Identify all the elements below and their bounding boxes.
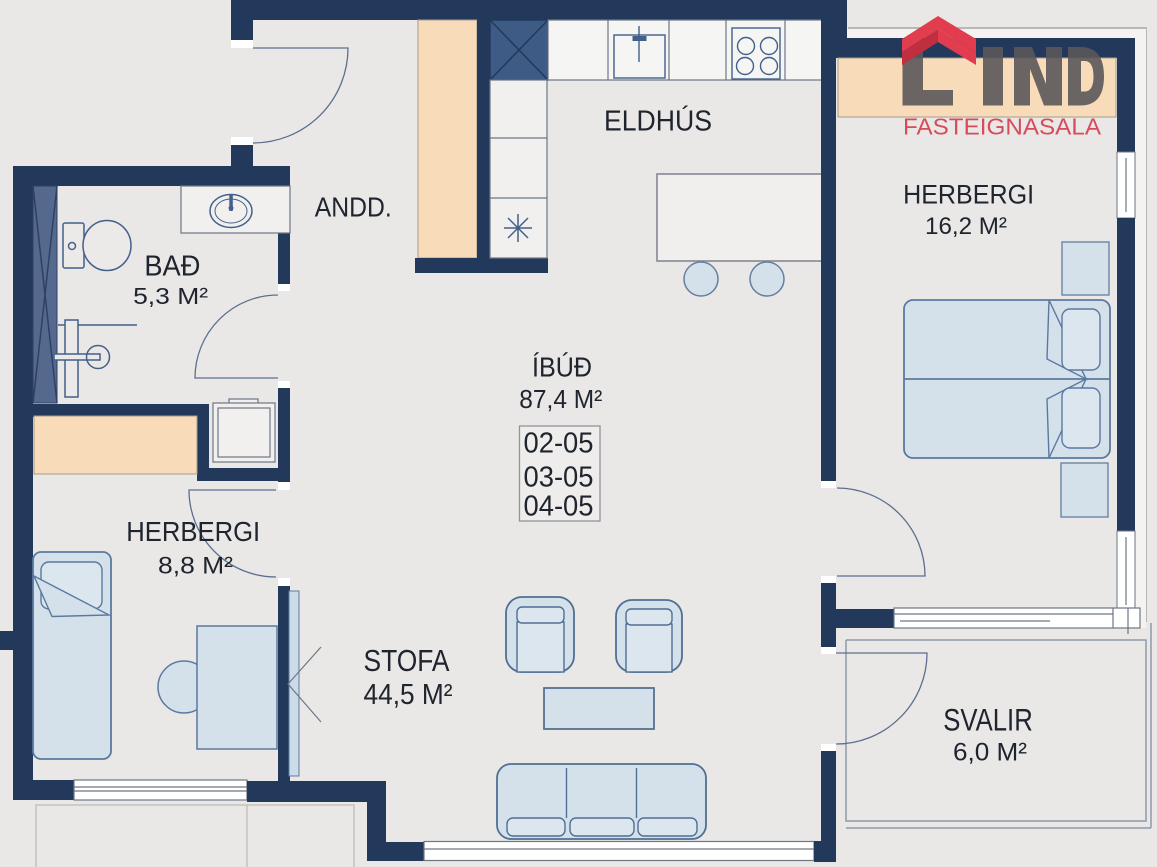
svg-text:BAÐ: BAÐ: [144, 251, 200, 283]
svg-text:8,8 M²: 8,8 M²: [158, 553, 233, 580]
svg-text:STOFA: STOFA: [364, 644, 451, 678]
svg-text:16,2 M²: 16,2 M²: [925, 213, 1007, 240]
svg-text:ANDD.: ANDD.: [315, 192, 392, 223]
svg-text:04-05: 04-05: [524, 491, 594, 523]
svg-text:HERBERGI: HERBERGI: [126, 516, 260, 547]
svg-text:ELDHÚS: ELDHÚS: [604, 104, 712, 137]
svg-text:87,4 M²: 87,4 M²: [519, 384, 602, 414]
svg-text:6,0 M²: 6,0 M²: [953, 739, 1027, 767]
svg-text:HERBERGI: HERBERGI: [903, 180, 1034, 210]
svg-text:44,5 M²: 44,5 M²: [364, 679, 453, 711]
svg-text:ÍBÚÐ: ÍBÚÐ: [532, 351, 592, 382]
svg-text:5,3 M²: 5,3 M²: [133, 283, 208, 309]
svg-text:02-05: 02-05: [524, 427, 594, 459]
svg-text:SVALIR: SVALIR: [943, 701, 1033, 737]
svg-text:03-05: 03-05: [524, 462, 594, 494]
svg-text:FASTEIGNASALA: FASTEIGNASALA: [903, 114, 1102, 140]
